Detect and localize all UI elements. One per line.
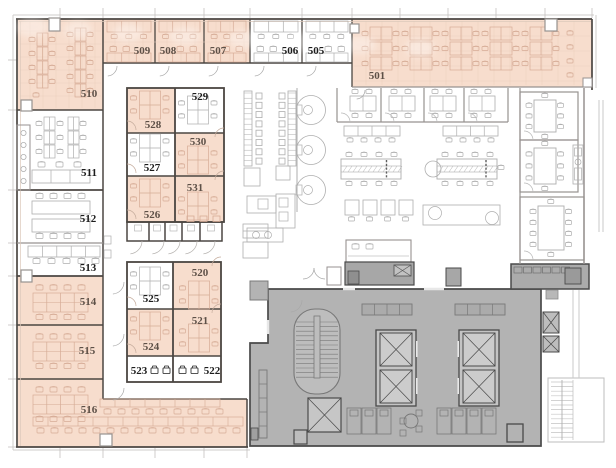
svg-text:516: 516 [81, 404, 98, 416]
svg-text:522: 522 [204, 365, 221, 377]
svg-text:529: 529 [192, 91, 209, 103]
svg-text:525: 525 [143, 293, 160, 305]
svg-text:520: 520 [192, 267, 209, 279]
svg-text:524: 524 [143, 341, 160, 353]
svg-text:527: 527 [144, 162, 161, 174]
svg-text:513: 513 [80, 262, 97, 274]
svg-text:515: 515 [79, 345, 96, 357]
svg-text:514: 514 [80, 296, 97, 308]
svg-text:531: 531 [187, 182, 204, 194]
svg-text:505: 505 [308, 45, 325, 57]
svg-text:510: 510 [81, 88, 98, 100]
svg-text:521: 521 [192, 315, 209, 327]
svg-text:512: 512 [80, 213, 97, 225]
svg-text:508: 508 [160, 45, 177, 57]
svg-text:528: 528 [145, 119, 162, 131]
svg-text:511: 511 [81, 167, 97, 179]
svg-text:530: 530 [190, 136, 207, 148]
svg-text:523: 523 [131, 365, 148, 377]
svg-text:506: 506 [282, 45, 299, 57]
svg-text:501: 501 [369, 70, 386, 82]
svg-text:509: 509 [134, 45, 151, 57]
svg-text:526: 526 [144, 209, 161, 221]
svg-text:507: 507 [210, 45, 227, 57]
